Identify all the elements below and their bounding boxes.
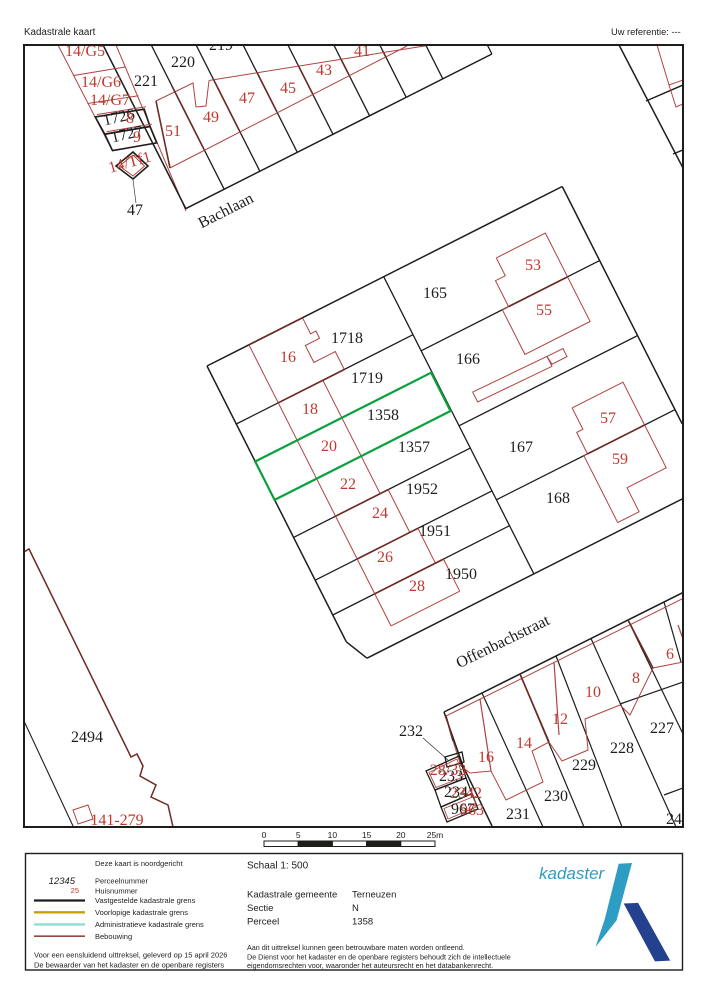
svg-text:47: 47 xyxy=(239,90,255,107)
svg-text:N: N xyxy=(352,903,359,914)
svg-text:2342: 2342 xyxy=(450,785,482,802)
svg-text:Perceel: Perceel xyxy=(247,917,279,928)
svg-text:8: 8 xyxy=(126,110,134,127)
svg-text:25m: 25m xyxy=(427,830,444,840)
svg-text:232: 232 xyxy=(399,723,423,740)
svg-text:228: 228 xyxy=(610,740,634,757)
svg-text:Administratieve kadastrale gre: Administratieve kadastrale grens xyxy=(95,920,204,929)
svg-text:165: 165 xyxy=(423,285,447,302)
svg-text:43: 43 xyxy=(316,62,332,79)
svg-text:167: 167 xyxy=(509,439,533,456)
svg-text:24: 24 xyxy=(372,505,388,522)
svg-text:Sectie: Sectie xyxy=(247,903,273,914)
svg-text:55: 55 xyxy=(536,302,552,319)
svg-text:2494: 2494 xyxy=(71,729,103,746)
svg-text:49: 49 xyxy=(203,109,219,126)
svg-text:25: 25 xyxy=(71,886,79,895)
svg-text:6: 6 xyxy=(666,646,674,663)
svg-text:10: 10 xyxy=(585,684,601,701)
svg-text:231: 231 xyxy=(506,806,530,823)
svg-text:168: 168 xyxy=(546,490,570,507)
svg-text:28: 28 xyxy=(409,578,425,595)
svg-text:1357: 1357 xyxy=(398,439,430,456)
svg-text:45: 45 xyxy=(280,80,296,97)
svg-text:Perceelnummer: Perceelnummer xyxy=(95,877,148,886)
svg-text:229: 229 xyxy=(572,757,596,774)
svg-text:8: 8 xyxy=(632,670,640,687)
svg-text:kadaster: kadaster xyxy=(539,864,606,883)
svg-text:51: 51 xyxy=(165,123,181,140)
svg-text:12: 12 xyxy=(552,711,568,728)
svg-text:De bewaarder van het kadaster: De bewaarder van het kadaster en de open… xyxy=(34,961,224,970)
svg-text:227: 227 xyxy=(650,720,674,737)
svg-text:Vastgestelde kadastrale grens: Vastgestelde kadastrale grens xyxy=(95,896,196,905)
svg-text:47: 47 xyxy=(127,202,143,219)
svg-text:Uw referentie: ---: Uw referentie: --- xyxy=(611,27,681,37)
svg-text:22: 22 xyxy=(340,476,356,493)
svg-text:5: 5 xyxy=(296,830,301,840)
svg-text:Schaal 1: 500: Schaal 1: 500 xyxy=(247,861,309,872)
svg-text:16: 16 xyxy=(280,349,296,366)
svg-text:1358: 1358 xyxy=(352,917,373,928)
svg-text:Huisnummer: Huisnummer xyxy=(95,887,138,896)
svg-text:0: 0 xyxy=(262,830,267,840)
svg-text:10: 10 xyxy=(328,830,338,840)
svg-text:26: 26 xyxy=(377,549,393,566)
svg-text:14/G6: 14/G6 xyxy=(81,74,121,91)
svg-text:Kadastrale kaart: Kadastrale kaart xyxy=(24,27,96,38)
svg-text:Deze kaart is noordgericht: Deze kaart is noordgericht xyxy=(95,859,183,868)
svg-text:1358: 1358 xyxy=(367,407,399,424)
svg-text:eigendomsrechten voor, waarond: eigendomsrechten voor, waaronder het aut… xyxy=(247,961,493,970)
svg-text:18: 18 xyxy=(302,401,318,418)
svg-text:963: 963 xyxy=(460,802,484,819)
svg-text:Aan dit uittreksel kunnen geen: Aan dit uittreksel kunnen geen betrouwba… xyxy=(247,943,465,952)
svg-text:28/33: 28/33 xyxy=(430,762,466,779)
svg-text:1952: 1952 xyxy=(406,481,438,498)
svg-text:14/G7: 14/G7 xyxy=(90,92,130,109)
svg-text:53: 53 xyxy=(525,257,541,274)
svg-text:Bebouwing: Bebouwing xyxy=(95,932,132,941)
svg-text:230: 230 xyxy=(544,788,568,805)
svg-text:20: 20 xyxy=(321,438,337,455)
svg-text:20: 20 xyxy=(396,830,406,840)
svg-text:9: 9 xyxy=(133,129,141,146)
svg-text:1718: 1718 xyxy=(331,330,363,347)
svg-text:1951: 1951 xyxy=(419,523,451,540)
svg-text:16: 16 xyxy=(478,749,494,766)
svg-text:220: 220 xyxy=(171,54,195,71)
svg-text:166: 166 xyxy=(456,351,480,368)
svg-text:221: 221 xyxy=(134,73,158,90)
svg-text:Kadastrale gemeente: Kadastrale gemeente xyxy=(247,890,337,901)
svg-text:1719: 1719 xyxy=(351,370,383,387)
svg-text:Voor een eensluidend uittrekse: Voor een eensluidend uittreksel, gelever… xyxy=(34,951,227,960)
svg-text:1950: 1950 xyxy=(445,566,477,583)
svg-text:Terneuzen: Terneuzen xyxy=(352,890,396,901)
svg-text:14: 14 xyxy=(516,735,532,752)
svg-text:59: 59 xyxy=(612,451,628,468)
svg-text:15: 15 xyxy=(362,830,372,840)
svg-text:57: 57 xyxy=(600,410,616,427)
svg-text:Voorlopige kadastrale grens: Voorlopige kadastrale grens xyxy=(95,908,188,917)
